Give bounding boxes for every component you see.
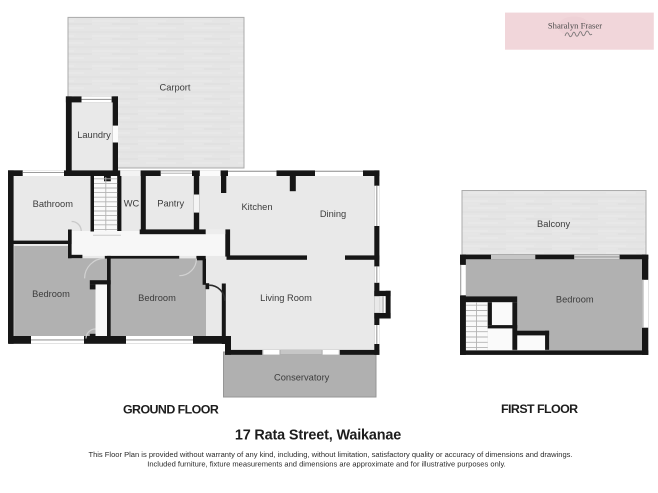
svg-text:Dining: Dining bbox=[320, 209, 346, 219]
svg-text:Kitchen: Kitchen bbox=[241, 202, 272, 212]
svg-text:Bathroom: Bathroom bbox=[33, 199, 74, 209]
svg-text:Pantry: Pantry bbox=[157, 199, 184, 209]
svg-text:Bedroom: Bedroom bbox=[556, 295, 594, 305]
svg-text:FIRST FLOOR: FIRST FLOOR bbox=[501, 402, 578, 416]
svg-text:Sharalyn Fraser: Sharalyn Fraser bbox=[548, 21, 602, 31]
svg-text:Bedroom: Bedroom bbox=[138, 293, 176, 303]
svg-text:Laundry: Laundry bbox=[77, 130, 111, 140]
svg-text:Carport: Carport bbox=[159, 83, 190, 93]
svg-text:Bedroom: Bedroom bbox=[32, 289, 70, 299]
svg-text:This Floor Plan is provided wi: This Floor Plan is provided without warr… bbox=[88, 450, 572, 459]
svg-text:Included furniture, fixture me: Included furniture, fixture measurements… bbox=[147, 459, 506, 468]
svg-text:GROUND FLOOR: GROUND FLOOR bbox=[123, 402, 219, 416]
svg-text:17 Rata Street, Waikanae: 17 Rata Street, Waikanae bbox=[235, 428, 401, 444]
svg-text:Conservatory: Conservatory bbox=[274, 373, 330, 383]
svg-text:Living Room: Living Room bbox=[260, 293, 312, 303]
svg-text:WC: WC bbox=[124, 199, 140, 209]
svg-text:Balcony: Balcony bbox=[537, 219, 570, 229]
